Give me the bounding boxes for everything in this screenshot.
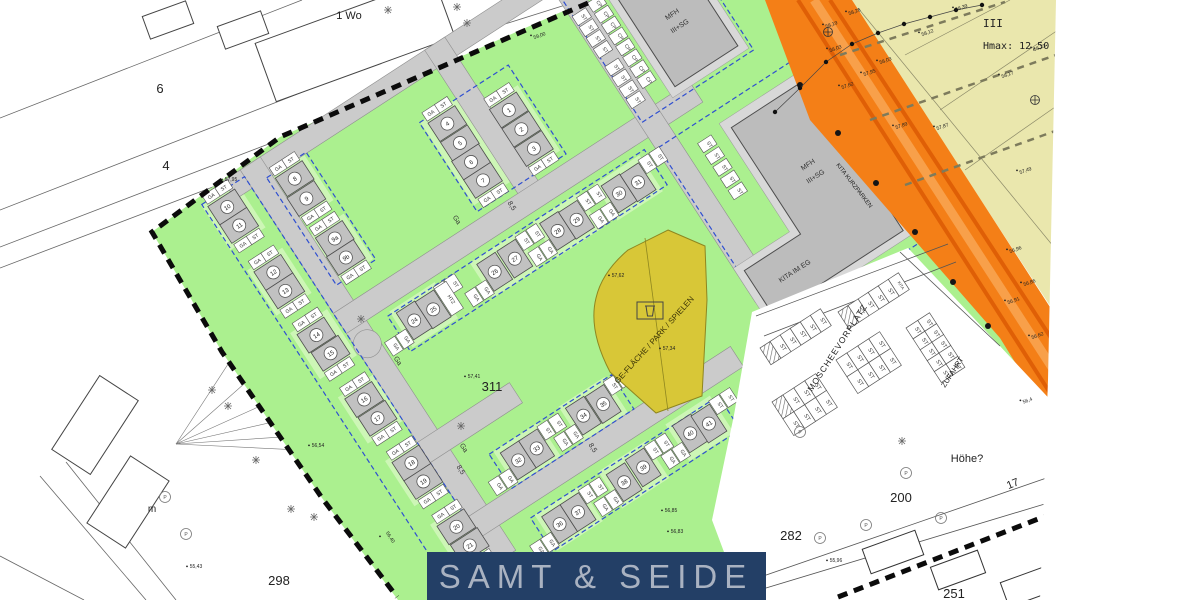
tree-star-icon [287,505,295,513]
elevation-dot [379,536,381,538]
tree-star-icon [898,437,906,445]
m-label: m [148,504,156,515]
tree-row-dot [773,110,777,114]
street-tree-dot [873,180,879,186]
tree-star-icon [224,402,232,410]
elevation-label: 55,43 [190,564,203,570]
tree-row-dot [824,60,828,64]
parcel-6: 6 [156,81,163,96]
elevation-label: 56,83 [671,529,684,535]
zone-storeys: III [983,17,1003,30]
hoehe-note: Höhe? [951,453,983,465]
elevation-dot [659,348,661,350]
tree-row-dot [850,42,854,46]
parcel-282: 282 [780,528,802,543]
tree-star-icon [457,422,465,430]
parcel-4: 4 [162,158,169,173]
elevation-label: 57,62 [612,273,625,279]
elevation-label: 55,96 [830,558,843,564]
elevation-dot [221,179,223,181]
tree-star-icon [463,19,471,27]
elevation-label: 56,54 [312,443,325,449]
street-tree-dot [835,130,841,136]
tree-star-icon [252,456,260,464]
parcel-251: 251 [943,586,965,600]
site-plan-page: 1234567899a9b101112131415161718192021242… [0,0,1200,600]
tree-row-dot [876,31,880,35]
tree-row-dot [928,15,932,19]
elevation-dot [661,510,663,512]
image-margin [1040,0,1200,600]
elevation-dot [667,531,669,533]
brand-title: SAMT & SEIDE [439,558,753,595]
elevation-dot [608,275,610,277]
tree-star-icon [384,6,392,14]
elevation-dot [308,445,310,447]
elevation-dot [826,560,828,562]
elevation-dot [464,376,466,378]
elevation-label: 56,85 [665,508,678,514]
parcel-200: 200 [890,490,912,505]
tree-star-icon [357,315,365,323]
site-plan-map: 1234567899a9b101112131415161718192021242… [0,0,1200,600]
elevation-label: 57,34 [663,346,676,352]
wo-label: 1 Wo [336,10,361,22]
parcel-298: 298 [268,573,290,588]
street-tree-dot [950,279,956,285]
zone-hmax: Hmax: 12,50 [983,41,1049,52]
tree-star-icon [310,513,318,521]
tree-row-dot [798,86,802,90]
tree-row-dot [902,22,906,26]
street-tree-dot [912,229,918,235]
tree-row-dot [980,3,984,7]
parcel-311: 311 [482,379,503,394]
tree-star-icon [208,386,216,394]
elevation-label: 57,41 [468,374,481,380]
street-tree-dot [985,323,991,329]
elevation-dot [186,566,188,568]
elevation-label: 57,95 [225,177,238,183]
tree-star-icon [453,3,461,11]
